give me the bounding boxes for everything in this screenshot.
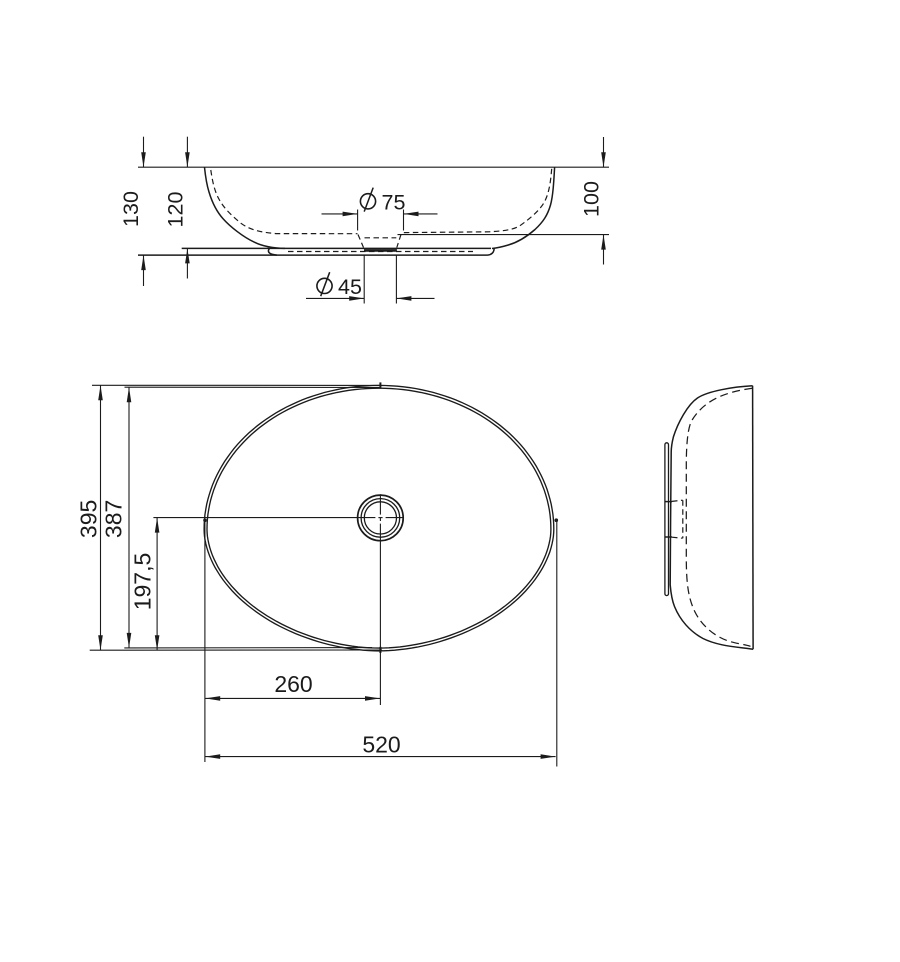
svg-text:387: 387	[101, 500, 127, 538]
svg-text:75: 75	[382, 191, 406, 215]
svg-text:395: 395	[75, 500, 101, 538]
svg-text:130: 130	[119, 191, 143, 227]
svg-text:100: 100	[579, 181, 603, 217]
svg-text:260: 260	[274, 671, 312, 697]
svg-text:45: 45	[338, 275, 362, 299]
svg-text:197,5: 197,5	[130, 553, 156, 611]
svg-text:520: 520	[362, 732, 400, 758]
svg-text:120: 120	[163, 192, 187, 228]
